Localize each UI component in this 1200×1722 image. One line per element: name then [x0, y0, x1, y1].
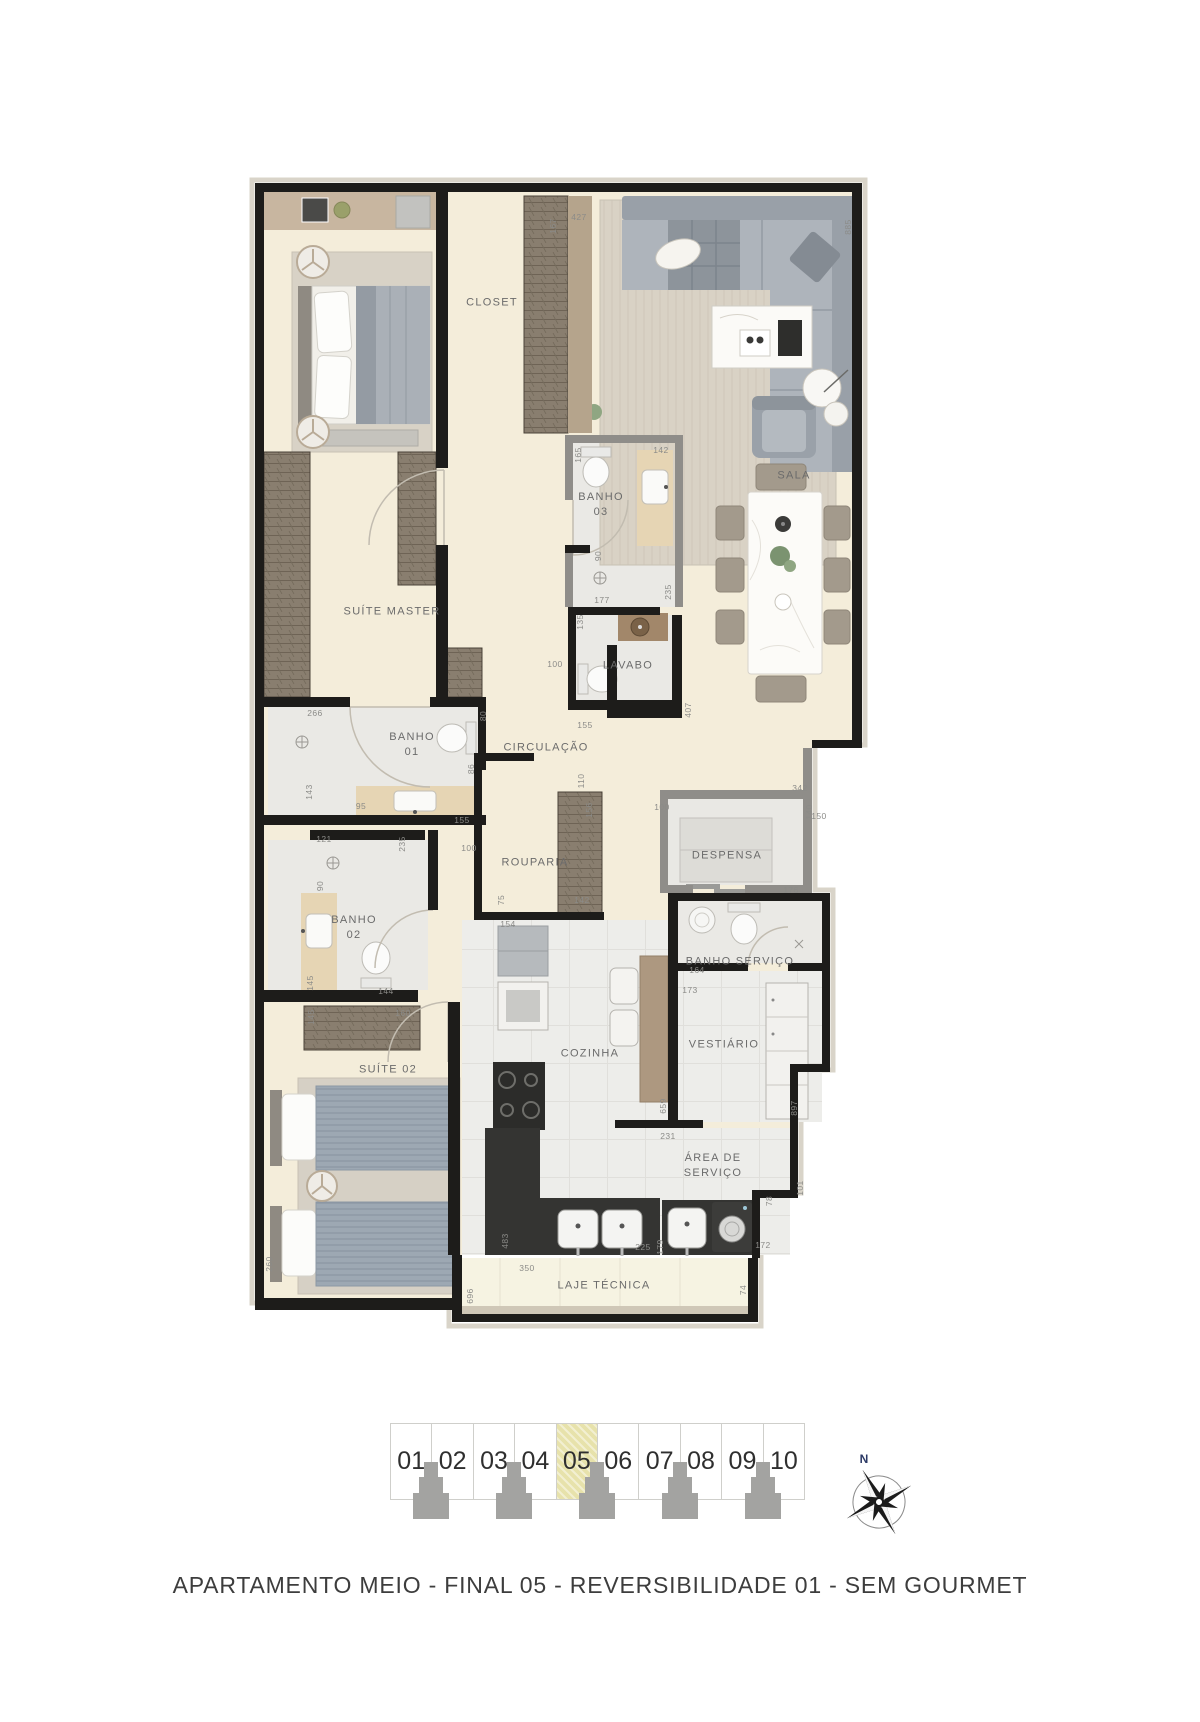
floor-plan-page: CLOSETSALABANHO03SUÍTE MASTERLAVABOBANHO… — [0, 0, 1200, 1722]
armchair — [752, 396, 816, 458]
rouparia-wardrobe — [558, 792, 602, 916]
building-pillar-icon — [494, 1462, 534, 1519]
building-pillar-icon — [660, 1462, 700, 1519]
closet-wardrobe — [524, 196, 592, 433]
building-pillar-icon — [577, 1462, 617, 1519]
compass-rose-icon — [831, 1454, 928, 1551]
building-pillar-icon — [411, 1462, 451, 1519]
vestiario-locker — [766, 983, 808, 1119]
building-pillar-icon — [743, 1462, 783, 1519]
laundry-fixtures — [662, 1200, 752, 1256]
compass-north-label: N — [860, 1452, 869, 1466]
coffee-table — [712, 306, 812, 368]
caption: APARTAMENTO MEIO - FINAL 05 - REVERSIBIL… — [0, 1572, 1200, 1599]
